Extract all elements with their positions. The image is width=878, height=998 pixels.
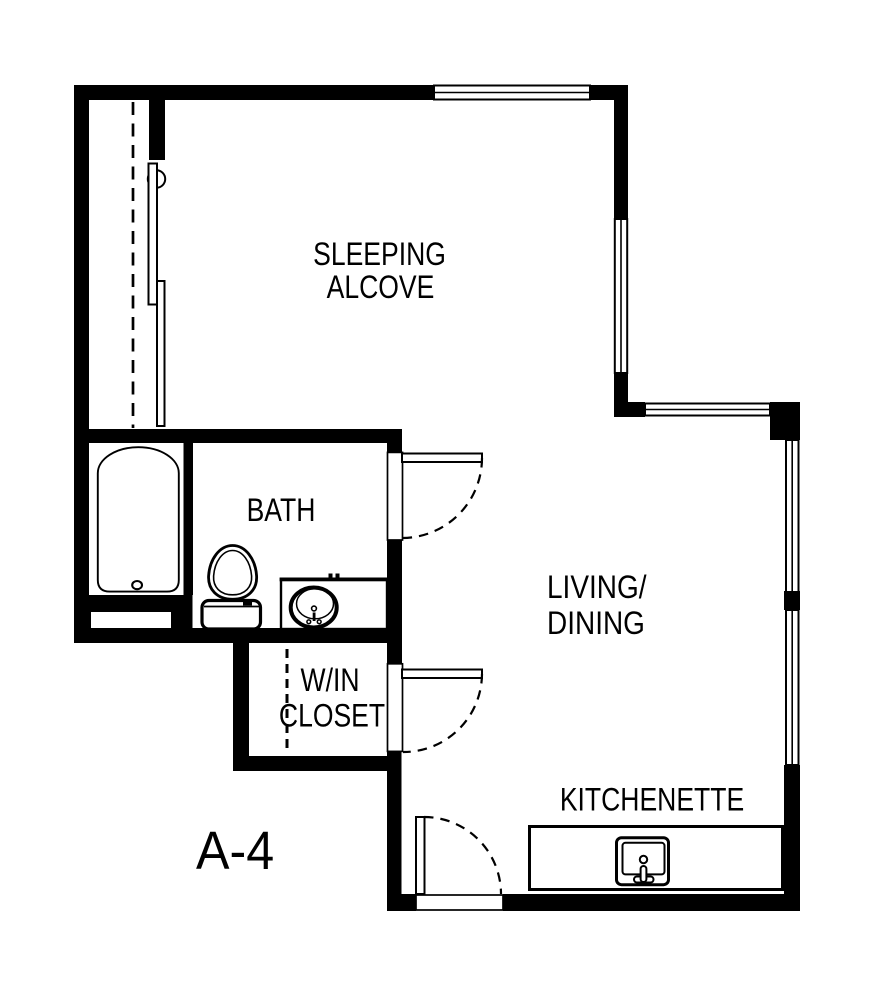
svg-text:W/IN: W/IN [301, 663, 360, 699]
svg-text:SLEEPING: SLEEPING [313, 237, 446, 273]
svg-text:KITCHENETTE: KITCHENETTE [560, 782, 744, 818]
svg-text:LIVING/: LIVING/ [547, 570, 647, 605]
svg-text:A-4: A-4 [196, 821, 274, 881]
svg-text:DINING: DINING [547, 606, 645, 641]
svg-text:CLOSET: CLOSET [279, 698, 385, 734]
svg-text:BATH: BATH [247, 493, 316, 529]
svg-text:ALCOVE: ALCOVE [327, 270, 435, 306]
